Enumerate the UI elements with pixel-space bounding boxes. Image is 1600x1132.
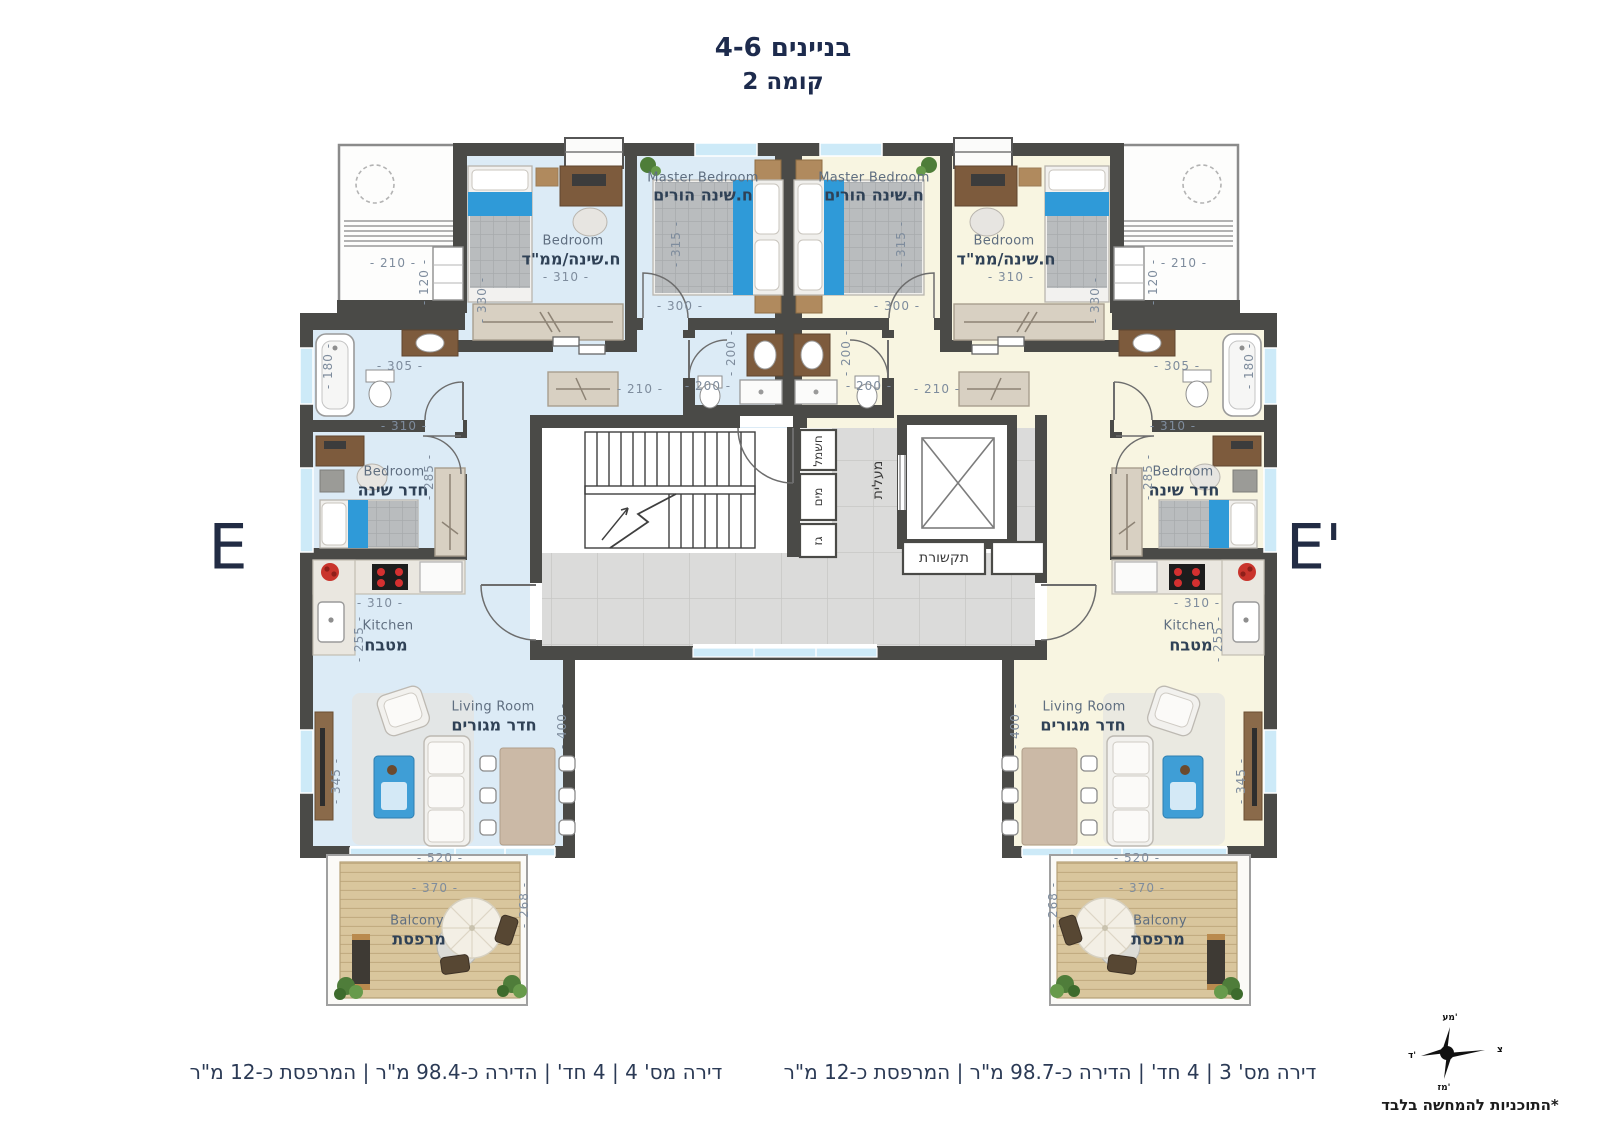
room-label-master-en-left: Master Bedroom xyxy=(647,171,759,186)
stairwell xyxy=(542,428,800,553)
dim-label: - 315 - xyxy=(894,221,908,267)
dim-label: - 255 - xyxy=(1211,616,1225,662)
dim-label: - 400 - xyxy=(1008,703,1022,749)
dim-label: - 310 - xyxy=(381,419,427,433)
room-label-bedroom-he-right: חדר שינה xyxy=(1149,481,1220,500)
shaft-label-water: מים xyxy=(811,488,825,507)
dim-label: - 315 - xyxy=(669,221,683,267)
room-label-balcony-en-right: Balcony xyxy=(1133,914,1187,929)
dim-label: - 268 - xyxy=(517,882,531,928)
room-label-master-he-left: ח.שינה הורים xyxy=(653,186,753,205)
dim-label: - 370 - xyxy=(1119,881,1165,895)
dim-label: - 520 - xyxy=(417,851,463,865)
dim-label: - 310 - xyxy=(543,270,589,284)
dim-label: - 305 - xyxy=(377,359,423,373)
room-label-mamad-en-left: Bedroom xyxy=(543,234,604,249)
elevator-label: מעלית xyxy=(870,461,886,500)
dim-label: - 345 - xyxy=(329,758,343,804)
dim-label: - 200 - xyxy=(846,379,892,393)
room-label-living-en-right: Living Room xyxy=(1042,700,1125,715)
compass-label-bottom: מז' xyxy=(1438,1083,1451,1093)
room-label-living-he-left: חדר מגורים xyxy=(451,716,536,735)
shaft-label-electricity: חשמל xyxy=(811,435,825,466)
room-label-kitchen-en-right: Kitchen xyxy=(1164,619,1215,634)
room-label-balcony-en-left: Balcony xyxy=(390,914,444,929)
room-label-bedroom-he-left: חדר שינה xyxy=(358,481,429,500)
dim-label: - 300 - xyxy=(874,299,920,313)
dim-label: - 300 - xyxy=(657,299,703,313)
communications-label: תקשורת xyxy=(919,550,969,566)
elevator xyxy=(898,420,1012,544)
room-label-kitchen-he-left: מטבח xyxy=(364,636,407,655)
dim-label: - 120 - xyxy=(1146,259,1160,305)
dim-label: - 210 - xyxy=(1161,256,1207,270)
plan-title: בניינים 4-6 xyxy=(715,33,852,63)
dim-label: - 180 - xyxy=(1242,343,1256,389)
dim-label: - 210 - xyxy=(617,382,663,396)
dim-label: - 255 - xyxy=(352,616,366,662)
compass-label-top: מע' xyxy=(1442,1013,1457,1023)
dim-label: - 310 - xyxy=(988,270,1034,284)
room-label-master-he-right: ח.שינה הורים xyxy=(824,186,924,205)
dim-label: - 520 - xyxy=(1114,851,1160,865)
dim-label: - 305 - xyxy=(1154,359,1200,373)
disclaimer-note: *התוכניות להמחשה בלבד xyxy=(1365,1096,1575,1114)
compass-label-left: ד' xyxy=(1408,1051,1416,1061)
dim-label: - 210 - xyxy=(914,382,960,396)
room-label-living-he-right: חדר מגורים xyxy=(1040,716,1125,735)
dim-label: - 400 - xyxy=(555,703,569,749)
section-marker-left: E xyxy=(208,511,247,584)
plan-floor-subtitle: קומה 2 xyxy=(742,69,823,95)
room-label-balcony-he-right: מרפסת xyxy=(1131,930,1185,949)
dim-label: - 120 - xyxy=(417,259,431,305)
dim-label: - 310 - xyxy=(1150,419,1196,433)
dim-label: - 330 - xyxy=(1088,277,1102,323)
dim-label: - 285 - xyxy=(422,454,436,500)
section-marker-right: E' xyxy=(1286,511,1342,584)
apartment-3-summary: דירה מס' 3 | 4 חד' | הדירה כ-98.7 מ"ר | … xyxy=(760,1060,1340,1084)
dim-label: - 285 - xyxy=(1141,454,1155,500)
dim-label: - 180 - xyxy=(321,343,335,389)
corridor-window xyxy=(693,644,877,657)
room-label-bedroom-en-right: Bedroom xyxy=(1153,465,1214,480)
room-label-kitchen-he-right: מטבח xyxy=(1169,636,1212,655)
dim-label: - 210 - xyxy=(370,256,416,270)
dim-label: - 330 - xyxy=(475,277,489,323)
room-label-master-en-right: Master Bedroom xyxy=(818,171,930,186)
room-label-balcony-he-left: מרפסת xyxy=(392,930,446,949)
compass-label-north: צ xyxy=(1497,1045,1503,1055)
room-label-living-en-left: Living Room xyxy=(451,700,534,715)
room-label-bedroom-en-left: Bedroom xyxy=(364,465,425,480)
dim-label: - 310 - xyxy=(357,596,403,610)
dim-label: - 200 - xyxy=(685,379,731,393)
floor-plan-page: בניינים 4-6 קומה 2 E E' Bedroom ח.שינה/מ… xyxy=(0,0,1600,1132)
room-label-mamad-he-left: ח.שינה/ממ"ד xyxy=(522,250,621,269)
dim-label: - 310 - xyxy=(1174,596,1220,610)
shaft-label-gas: גז xyxy=(811,536,825,545)
room-label-mamad-en-right: Bedroom xyxy=(974,234,1035,249)
room-label-kitchen-en-left: Kitchen xyxy=(363,619,414,634)
compass-icon xyxy=(1421,1027,1485,1079)
apartment-4-summary: דירה מס' 4 | 4 חד' | הדירה כ-98.4 מ"ר | … xyxy=(170,1060,742,1084)
dim-label: - 200 - xyxy=(839,330,853,376)
building-core xyxy=(530,415,1047,660)
dim-label: - 268 - xyxy=(1046,882,1060,928)
dim-label: - 370 - xyxy=(412,881,458,895)
dim-label: - 345 - xyxy=(1234,758,1248,804)
dim-label: - 200 - xyxy=(724,330,738,376)
room-label-mamad-he-right: ח.שינה/ממ"ד xyxy=(957,250,1056,269)
